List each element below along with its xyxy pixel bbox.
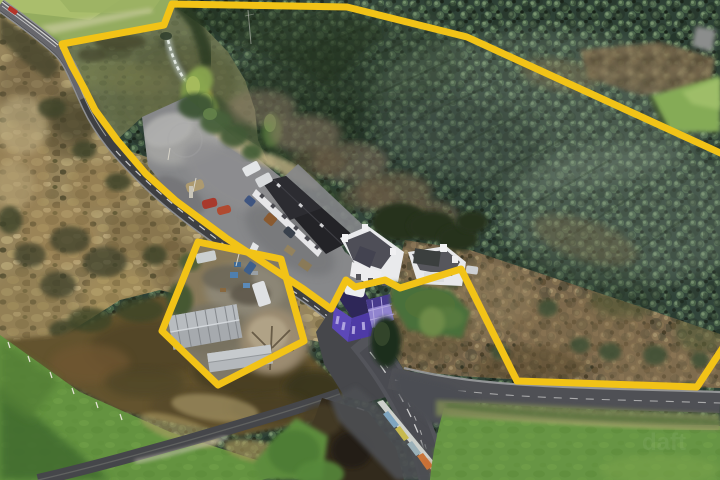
svg-text:daft: daft xyxy=(642,429,686,456)
